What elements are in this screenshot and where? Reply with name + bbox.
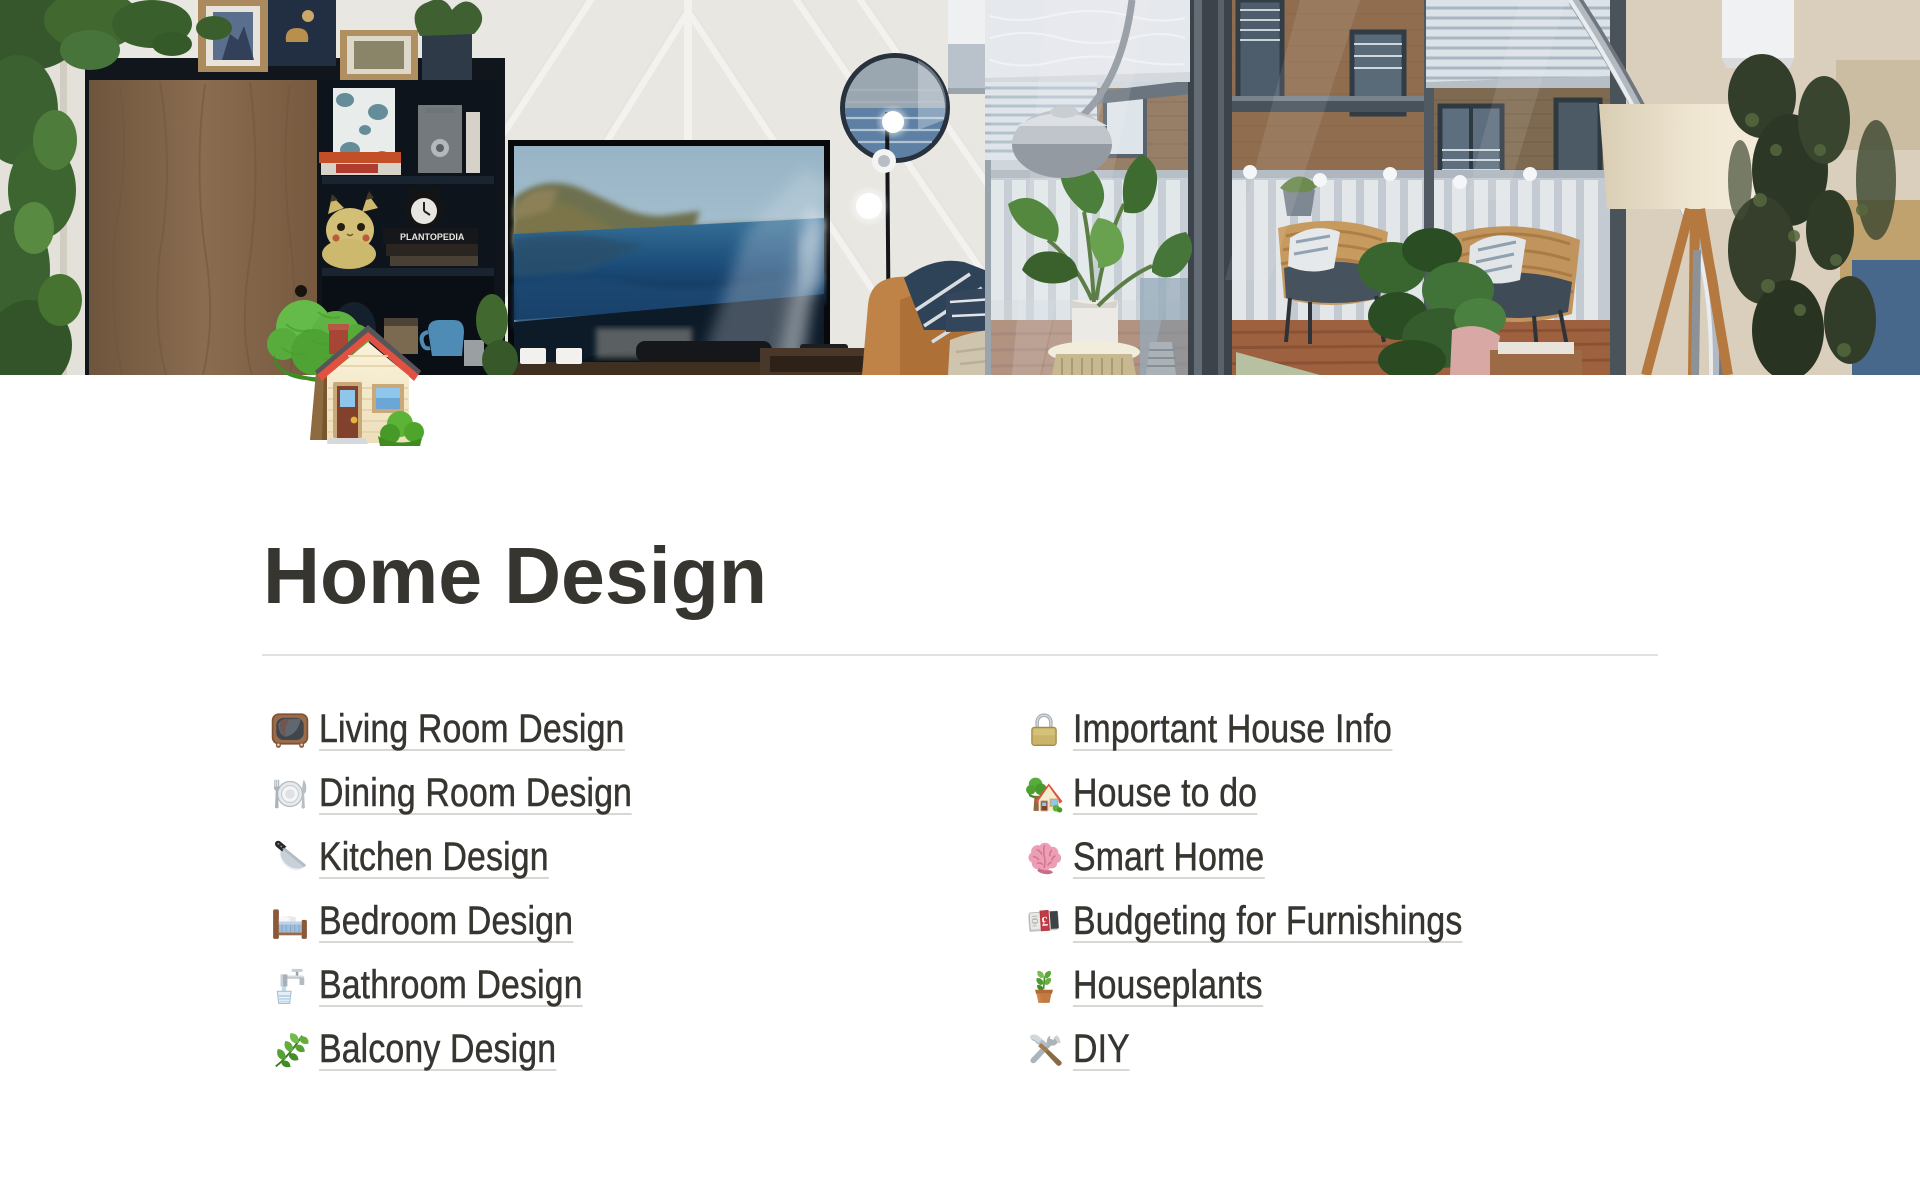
svg-text:PLANTOPEDIA: PLANTOPEDIA [400, 232, 465, 242]
